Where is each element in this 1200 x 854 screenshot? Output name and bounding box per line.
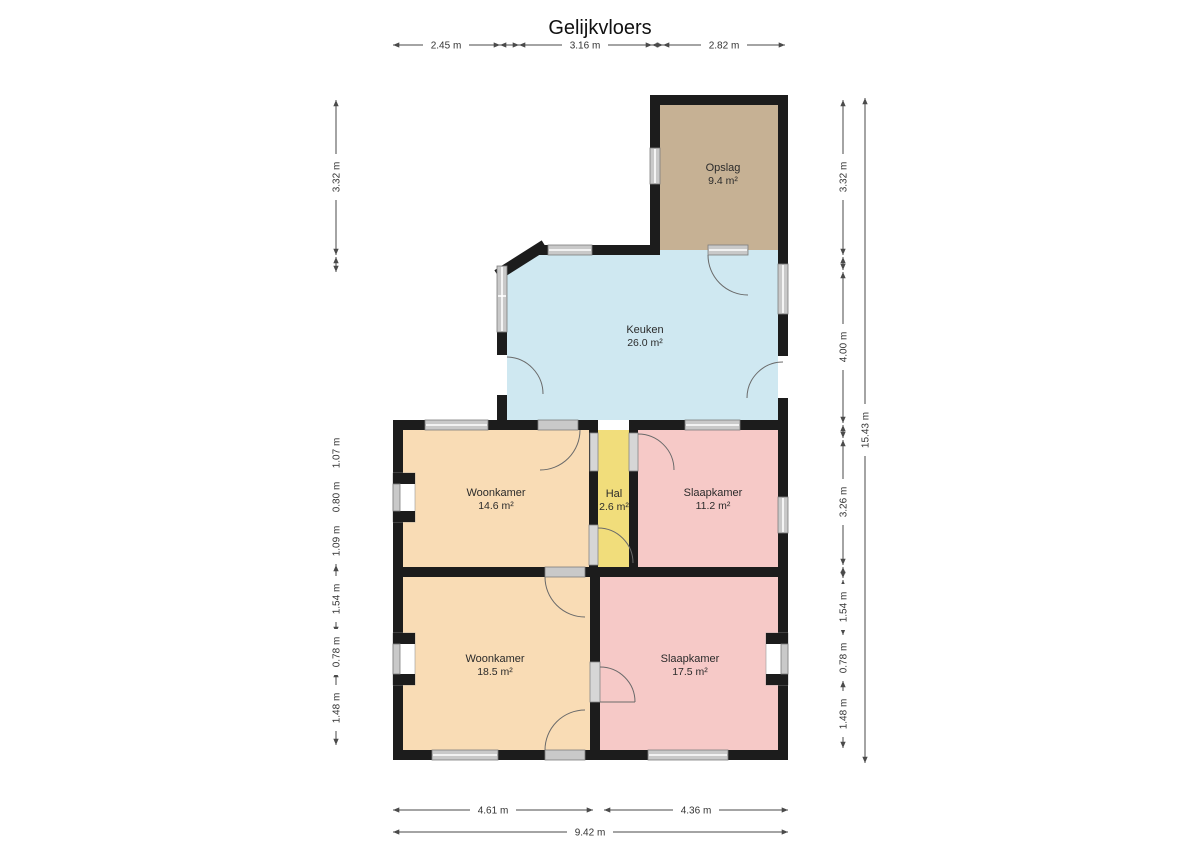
floor-plan-page: Gelijkvloers <box>0 0 1200 849</box>
label-opslag-area: 9.4 m² <box>708 175 738 187</box>
label-woonkamer1-area: 14.6 m² <box>478 500 514 512</box>
label-slaapkamer1-area: 11.2 m² <box>696 500 731 512</box>
label-woonkamer2-area: 18.5 m² <box>477 666 513 678</box>
label-woonkamer2-name: Woonkamer <box>465 653 524 665</box>
dim-left-1: 3.32 m <box>332 162 343 193</box>
label-woonkamer1-name: Woonkamer <box>466 487 525 499</box>
label-slaapkamer1-name: Slaapkamer <box>684 487 743 499</box>
dim-right-4: 1.54 m <box>839 592 850 623</box>
label-slaapkamer2-area: 17.5 m² <box>672 666 708 678</box>
label-hal-area: 2.6 m² <box>599 501 629 513</box>
dim-left-4: 1.09 m <box>332 526 343 557</box>
dim-right-3: 3.26 m <box>839 487 850 518</box>
dim-left-6: 0.78 m <box>332 637 343 668</box>
label-slaapkamer2-name: Slaapkamer <box>661 653 720 665</box>
dimension-top: 2.45 m 3.16 m 2.82 m <box>393 38 785 52</box>
dim-bottom-2: 4.36 m <box>681 806 712 817</box>
dim-left-2: 1.07 m <box>332 438 343 469</box>
dim-left-5: 1.54 m <box>332 584 343 615</box>
floor-plan-canvas: Gelijkvloers <box>0 0 1200 849</box>
dim-left-7: 1.48 m <box>332 693 343 724</box>
dimension-right-total: 15.43 m <box>858 98 872 763</box>
page-title: Gelijkvloers <box>548 17 651 39</box>
dim-top-3: 2.82 m <box>709 41 740 52</box>
dimension-bottom: 4.61 m 4.36 m 9.42 m <box>393 803 788 839</box>
dimension-right-inner: 3.32 m 4.00 m 3.26 m 1.54 m 0.78 m 1.48 … <box>836 100 850 748</box>
dimension-left: 3.32 m 1.07 m 0.80 m 1.09 m 1.54 m 0.78 … <box>329 100 343 745</box>
dim-top-1: 2.45 m <box>431 41 462 52</box>
dim-right-5: 0.78 m <box>839 643 850 674</box>
dim-bottom-1: 4.61 m <box>478 806 509 817</box>
dim-right-1: 3.32 m <box>839 162 850 193</box>
dim-right-2: 4.00 m <box>839 332 850 363</box>
dim-top-2: 3.16 m <box>570 41 601 52</box>
label-opslag-name: Opslag <box>706 162 741 174</box>
label-hal-name: Hal <box>606 488 623 500</box>
dim-right-6: 1.48 m <box>839 699 850 730</box>
dim-bottom-total: 9.42 m <box>575 828 606 839</box>
dim-left-3: 0.80 m <box>332 482 343 513</box>
label-keuken-name: Keuken <box>626 324 663 336</box>
dim-right-total: 15.43 m <box>861 412 872 448</box>
label-keuken-area: 26.0 m² <box>627 337 663 349</box>
